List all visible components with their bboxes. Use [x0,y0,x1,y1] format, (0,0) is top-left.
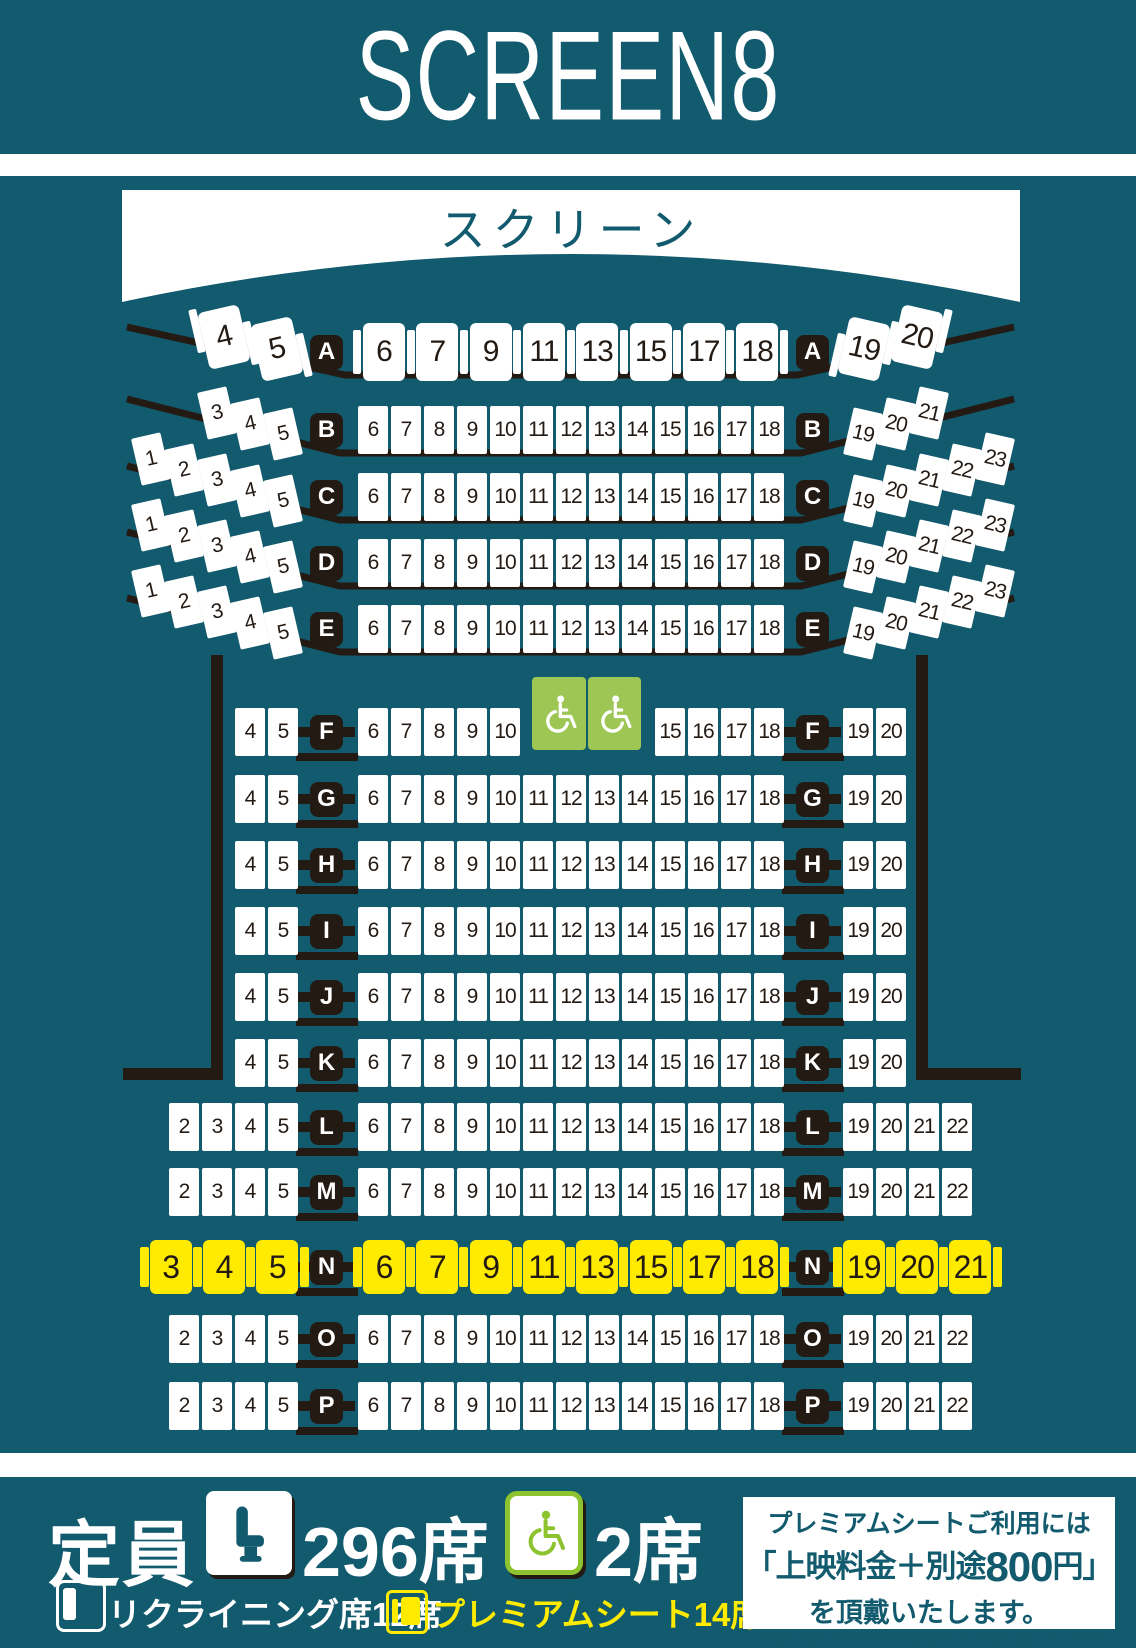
seat-L-11[interactable]: 11 [523,1103,553,1151]
seat-G-12[interactable]: 12 [556,775,586,823]
seat-C-13[interactable]: 13 [589,473,619,521]
seat-E-6[interactable]: 6 [358,605,388,653]
seat-L-3[interactable]: 3 [202,1103,232,1151]
seat-B-7[interactable]: 7 [391,406,421,454]
seat-M-21[interactable]: 21 [909,1168,939,1216]
seat-G-4[interactable]: 4 [235,775,265,823]
seat-M-16[interactable]: 16 [688,1168,718,1216]
seat-C-23[interactable]: 23 [975,432,1015,486]
seat-O-15[interactable]: 15 [655,1315,685,1363]
seat-E-23[interactable]: 23 [975,564,1015,618]
seat-I-13[interactable]: 13 [589,907,619,955]
seat-I-10[interactable]: 10 [490,907,520,955]
seat-N-15[interactable]: 15 [630,1240,672,1294]
seat-P-9[interactable]: 9 [457,1382,487,1430]
seat-B-19[interactable]: 19 [843,407,883,461]
seat-G-10[interactable]: 10 [490,775,520,823]
seat-A-13[interactable]: 13 [576,323,618,381]
seat-J-17[interactable]: 17 [721,973,751,1021]
seat-J-5[interactable]: 5 [268,973,298,1021]
seat-I-8[interactable]: 8 [424,907,454,955]
seat-F-19[interactable]: 19 [843,708,873,756]
seat-G-18[interactable]: 18 [754,775,784,823]
seat-C-6[interactable]: 6 [358,473,388,521]
seat-K-13[interactable]: 13 [589,1039,619,1087]
seat-O-19[interactable]: 19 [843,1315,873,1363]
seat-D-21[interactable]: 21 [909,519,949,573]
seat-I-17[interactable]: 17 [721,907,751,955]
seat-N-18[interactable]: 18 [736,1240,778,1294]
seat-C-7[interactable]: 7 [391,473,421,521]
seat-H-12[interactable]: 12 [556,841,586,889]
seat-G-17[interactable]: 17 [721,775,751,823]
seat-M-19[interactable]: 19 [843,1168,873,1216]
seat-B-5[interactable]: 5 [263,407,303,461]
seat-F-17[interactable]: 17 [721,708,751,756]
seat-I-16[interactable]: 16 [688,907,718,955]
seat-O-16[interactable]: 16 [688,1315,718,1363]
seat-H-19[interactable]: 19 [843,841,873,889]
seat-I-9[interactable]: 9 [457,907,487,955]
seat-K-18[interactable]: 18 [754,1039,784,1087]
seat-D-3[interactable]: 3 [197,519,237,573]
seat-A-15[interactable]: 15 [630,323,672,381]
seat-I-19[interactable]: 19 [843,907,873,955]
seat-M-5[interactable]: 5 [268,1168,298,1216]
seat-O-14[interactable]: 14 [622,1315,652,1363]
seat-O-5[interactable]: 5 [268,1315,298,1363]
seat-D-8[interactable]: 8 [424,539,454,587]
seat-N-3[interactable]: 3 [150,1240,192,1294]
seat-G-15[interactable]: 15 [655,775,685,823]
seat-A-11[interactable]: 11 [523,323,565,381]
seat-A-19[interactable]: 19 [837,316,891,382]
seat-N-6[interactable]: 6 [363,1240,405,1294]
seat-D-19[interactable]: 19 [843,540,883,594]
seat-H-9[interactable]: 9 [457,841,487,889]
seat-P-18[interactable]: 18 [754,1382,784,1430]
seat-D-6[interactable]: 6 [358,539,388,587]
seat-K-5[interactable]: 5 [268,1039,298,1087]
seat-L-4[interactable]: 4 [235,1103,265,1151]
seat-E-14[interactable]: 14 [622,605,652,653]
seat-M-18[interactable]: 18 [754,1168,784,1216]
seat-P-13[interactable]: 13 [589,1382,619,1430]
seat-M-13[interactable]: 13 [589,1168,619,1216]
seat-H-8[interactable]: 8 [424,841,454,889]
seat-P-6[interactable]: 6 [358,1382,388,1430]
seat-P-17[interactable]: 17 [721,1382,751,1430]
seat-G-7[interactable]: 7 [391,775,421,823]
seat-H-20[interactable]: 20 [876,841,906,889]
seat-B-12[interactable]: 12 [556,406,586,454]
seat-M-14[interactable]: 14 [622,1168,652,1216]
seat-B-4[interactable]: 4 [230,397,270,451]
seat-E-8[interactable]: 8 [424,605,454,653]
seat-H-13[interactable]: 13 [589,841,619,889]
seat-C-9[interactable]: 9 [457,473,487,521]
seat-A-9[interactable]: 9 [470,323,512,381]
seat-H-7[interactable]: 7 [391,841,421,889]
seat-L-22[interactable]: 22 [942,1103,972,1151]
seat-L-2[interactable]: 2 [169,1103,199,1151]
seat-M-6[interactable]: 6 [358,1168,388,1216]
seat-F-18[interactable]: 18 [754,708,784,756]
seat-L-6[interactable]: 6 [358,1103,388,1151]
seat-E-10[interactable]: 10 [490,605,520,653]
seat-L-20[interactable]: 20 [876,1103,906,1151]
seat-L-17[interactable]: 17 [721,1103,751,1151]
seat-G-19[interactable]: 19 [843,775,873,823]
seat-H-6[interactable]: 6 [358,841,388,889]
wheelchair-seat-F-1[interactable] [532,677,585,750]
seat-D-13[interactable]: 13 [589,539,619,587]
seat-O-12[interactable]: 12 [556,1315,586,1363]
seat-B-9[interactable]: 9 [457,406,487,454]
seat-I-4[interactable]: 4 [235,907,265,955]
seat-B-3[interactable]: 3 [197,386,237,440]
seat-I-7[interactable]: 7 [391,907,421,955]
seat-L-19[interactable]: 19 [843,1103,873,1151]
seat-B-8[interactable]: 8 [424,406,454,454]
seat-N-5[interactable]: 5 [256,1240,298,1294]
seat-P-21[interactable]: 21 [909,1382,939,1430]
seat-J-12[interactable]: 12 [556,973,586,1021]
seat-C-3[interactable]: 3 [197,453,237,507]
seat-N-17[interactable]: 17 [683,1240,725,1294]
seat-O-22[interactable]: 22 [942,1315,972,1363]
seat-O-4[interactable]: 4 [235,1315,265,1363]
seat-P-4[interactable]: 4 [235,1382,265,1430]
seat-E-16[interactable]: 16 [688,605,718,653]
seat-N-13[interactable]: 13 [576,1240,618,1294]
seat-J-20[interactable]: 20 [876,973,906,1021]
seat-N-11[interactable]: 11 [523,1240,565,1294]
seat-K-4[interactable]: 4 [235,1039,265,1087]
seat-K-16[interactable]: 16 [688,1039,718,1087]
seat-E-7[interactable]: 7 [391,605,421,653]
seat-L-14[interactable]: 14 [622,1103,652,1151]
seat-D-16[interactable]: 16 [688,539,718,587]
seat-O-10[interactable]: 10 [490,1315,520,1363]
seat-C-21[interactable]: 21 [909,453,949,507]
seat-D-5[interactable]: 5 [263,540,303,594]
seat-H-17[interactable]: 17 [721,841,751,889]
seat-E-19[interactable]: 19 [843,606,883,660]
seat-B-15[interactable]: 15 [655,406,685,454]
seat-C-19[interactable]: 19 [843,474,883,528]
seat-M-15[interactable]: 15 [655,1168,685,1216]
seat-K-9[interactable]: 9 [457,1039,487,1087]
seat-C-10[interactable]: 10 [490,473,520,521]
seat-layer: 4567911131517181920AA3456789101112131415… [0,0,1136,1648]
row-label-stub [298,1334,310,1344]
seat-A-17[interactable]: 17 [683,323,725,381]
seat-G-14[interactable]: 14 [622,775,652,823]
seat-G-6[interactable]: 6 [358,775,388,823]
seat-N-4[interactable]: 4 [203,1240,245,1294]
seat-C-16[interactable]: 16 [688,473,718,521]
seat-I-6[interactable]: 6 [358,907,388,955]
seat-N-20[interactable]: 20 [896,1240,938,1294]
seat-G-13[interactable]: 13 [589,775,619,823]
seat-N-7[interactable]: 7 [416,1240,458,1294]
seat-J-8[interactable]: 8 [424,973,454,1021]
seat-M-20[interactable]: 20 [876,1168,906,1216]
seat-O-7[interactable]: 7 [391,1315,421,1363]
seat-H-18[interactable]: 18 [754,841,784,889]
seat-J-4[interactable]: 4 [235,973,265,1021]
seat-M-11[interactable]: 11 [523,1168,553,1216]
seat-H-16[interactable]: 16 [688,841,718,889]
seat-L-16[interactable]: 16 [688,1103,718,1151]
seat-I-18[interactable]: 18 [754,907,784,955]
seat-K-20[interactable]: 20 [876,1039,906,1087]
seat-C-12[interactable]: 12 [556,473,586,521]
seat-O-9[interactable]: 9 [457,1315,487,1363]
seat-K-19[interactable]: 19 [843,1039,873,1087]
seat-M-12[interactable]: 12 [556,1168,586,1216]
seat-P-8[interactable]: 8 [424,1382,454,1430]
seat-E-5[interactable]: 5 [263,606,303,660]
seat-J-19[interactable]: 19 [843,973,873,1021]
seat-C-14[interactable]: 14 [622,473,652,521]
seat-M-2[interactable]: 2 [169,1168,199,1216]
seat-J-7[interactable]: 7 [391,973,421,1021]
seat-K-8[interactable]: 8 [424,1039,454,1087]
seat-B-17[interactable]: 17 [721,406,751,454]
seat-F-7[interactable]: 7 [391,708,421,756]
seat-F-16[interactable]: 16 [688,708,718,756]
seat-B-21[interactable]: 21 [909,386,949,440]
seat-J-13[interactable]: 13 [589,973,619,1021]
seat-B-13[interactable]: 13 [589,406,619,454]
seat-D-14[interactable]: 14 [622,539,652,587]
seat-N-19[interactable]: 19 [843,1240,885,1294]
seat-D-18[interactable]: 18 [754,539,784,587]
seat-M-4[interactable]: 4 [235,1168,265,1216]
seat-L-21[interactable]: 21 [909,1103,939,1151]
seat-M-8[interactable]: 8 [424,1168,454,1216]
seat-I-11[interactable]: 11 [523,907,553,955]
seat-P-16[interactable]: 16 [688,1382,718,1430]
seat-M-9[interactable]: 9 [457,1168,487,1216]
seat-E-18[interactable]: 18 [754,605,784,653]
seat-P-14[interactable]: 14 [622,1382,652,1430]
seat-B-14[interactable]: 14 [622,406,652,454]
seat-F-15[interactable]: 15 [655,708,685,756]
seat-D-2[interactable]: 2 [164,509,204,563]
seat-E-11[interactable]: 11 [523,605,553,653]
seat-D-23[interactable]: 23 [975,498,1015,552]
seat-O-21[interactable]: 21 [909,1315,939,1363]
seat-B-18[interactable]: 18 [754,406,784,454]
seat-K-15[interactable]: 15 [655,1039,685,1087]
seat-L-15[interactable]: 15 [655,1103,685,1151]
armrest [353,1247,362,1287]
seat-P-5[interactable]: 5 [268,1382,298,1430]
seat-I-15[interactable]: 15 [655,907,685,955]
seat-K-6[interactable]: 6 [358,1039,388,1087]
seat-J-10[interactable]: 10 [490,973,520,1021]
seat-M-17[interactable]: 17 [721,1168,751,1216]
seat-D-10[interactable]: 10 [490,539,520,587]
seat-A-20[interactable]: 20 [890,304,944,370]
seat-C-18[interactable]: 18 [754,473,784,521]
seat-D-7[interactable]: 7 [391,539,421,587]
seat-G-20[interactable]: 20 [876,775,906,823]
seat-O-2[interactable]: 2 [169,1315,199,1363]
row-label-stub [343,794,355,804]
seat-H-5[interactable]: 5 [268,841,298,889]
seat-D-15[interactable]: 15 [655,539,685,587]
seat-E-2[interactable]: 2 [164,575,204,629]
seat-F-8[interactable]: 8 [424,708,454,756]
seat-P-22[interactable]: 22 [942,1382,972,1430]
seat-D-17[interactable]: 17 [721,539,751,587]
seat-C-8[interactable]: 8 [424,473,454,521]
row-label-F: F [796,715,829,750]
seat-C-11[interactable]: 11 [523,473,553,521]
seat-M-10[interactable]: 10 [490,1168,520,1216]
seat-F-10[interactable]: 10 [490,708,520,756]
seat-A-4[interactable]: 4 [197,304,251,370]
seat-H-15[interactable]: 15 [655,841,685,889]
seat-K-12[interactable]: 12 [556,1039,586,1087]
seat-J-9[interactable]: 9 [457,973,487,1021]
seat-K-14[interactable]: 14 [622,1039,652,1087]
seat-O-17[interactable]: 17 [721,1315,751,1363]
seat-D-1[interactable]: 1 [131,498,171,552]
seat-E-4[interactable]: 4 [230,596,270,650]
seat-G-8[interactable]: 8 [424,775,454,823]
seat-K-10[interactable]: 10 [490,1039,520,1087]
seat-E-9[interactable]: 9 [457,605,487,653]
seat-N-9[interactable]: 9 [470,1240,512,1294]
seat-O-13[interactable]: 13 [589,1315,619,1363]
row-label-stub [343,1122,355,1132]
seat-C-1[interactable]: 1 [131,432,171,486]
seat-P-2[interactable]: 2 [169,1382,199,1430]
seat-B-6[interactable]: 6 [358,406,388,454]
seat-J-15[interactable]: 15 [655,973,685,1021]
seat-M-7[interactable]: 7 [391,1168,421,1216]
seat-C-2[interactable]: 2 [164,443,204,497]
seat-M-22[interactable]: 22 [942,1168,972,1216]
wheelchair-seat-F-2[interactable] [588,677,641,750]
seat-C-17[interactable]: 17 [721,473,751,521]
seat-J-14[interactable]: 14 [622,973,652,1021]
seat-D-9[interactable]: 9 [457,539,487,587]
seat-L-7[interactable]: 7 [391,1103,421,1151]
seat-C-4[interactable]: 4 [230,464,270,518]
seat-F-6[interactable]: 6 [358,708,388,756]
seat-I-5[interactable]: 5 [268,907,298,955]
seat-G-11[interactable]: 11 [523,775,553,823]
seat-O-11[interactable]: 11 [523,1315,553,1363]
seat-E-1[interactable]: 1 [131,564,171,618]
seat-B-11[interactable]: 11 [523,406,553,454]
seat-I-12[interactable]: 12 [556,907,586,955]
seat-I-20[interactable]: 20 [876,907,906,955]
seat-J-11[interactable]: 11 [523,973,553,1021]
seat-F-9[interactable]: 9 [457,708,487,756]
seat-G-5[interactable]: 5 [268,775,298,823]
seat-K-7[interactable]: 7 [391,1039,421,1087]
seat-K-17[interactable]: 17 [721,1039,751,1087]
seat-D-4[interactable]: 4 [230,530,270,584]
seat-P-20[interactable]: 20 [876,1382,906,1430]
seat-A-18[interactable]: 18 [736,323,778,381]
seat-B-10[interactable]: 10 [490,406,520,454]
armrest [673,330,681,374]
seat-P-10[interactable]: 10 [490,1382,520,1430]
seat-G-9[interactable]: 9 [457,775,487,823]
seat-D-11[interactable]: 11 [523,539,553,587]
seat-H-10[interactable]: 10 [490,841,520,889]
seat-O-8[interactable]: 8 [424,1315,454,1363]
seat-G-16[interactable]: 16 [688,775,718,823]
seat-P-7[interactable]: 7 [391,1382,421,1430]
seat-J-16[interactable]: 16 [688,973,718,1021]
seat-L-10[interactable]: 10 [490,1103,520,1151]
seat-P-19[interactable]: 19 [843,1382,873,1430]
seat-A-7[interactable]: 7 [416,323,458,381]
seat-E-3[interactable]: 3 [197,585,237,639]
seat-A-6[interactable]: 6 [363,323,405,381]
seat-O-3[interactable]: 3 [202,1315,232,1363]
seat-L-12[interactable]: 12 [556,1103,586,1151]
seat-C-5[interactable]: 5 [263,474,303,528]
seat-N-21[interactable]: 21 [949,1240,991,1294]
seat-O-6[interactable]: 6 [358,1315,388,1363]
seat-F-4[interactable]: 4 [235,708,265,756]
seat-E-13[interactable]: 13 [589,605,619,653]
seat-L-5[interactable]: 5 [268,1103,298,1151]
seat-P-11[interactable]: 11 [523,1382,553,1430]
seat-P-15[interactable]: 15 [655,1382,685,1430]
seat-L-18[interactable]: 18 [754,1103,784,1151]
seat-L-9[interactable]: 9 [457,1103,487,1151]
seat-H-11[interactable]: 11 [523,841,553,889]
seat-B-16[interactable]: 16 [688,406,718,454]
seat-J-6[interactable]: 6 [358,973,388,1021]
seat-J-18[interactable]: 18 [754,973,784,1021]
seat-F-5[interactable]: 5 [268,708,298,756]
seat-O-18[interactable]: 18 [754,1315,784,1363]
seat-E-15[interactable]: 15 [655,605,685,653]
seat-C-15[interactable]: 15 [655,473,685,521]
seat-M-3[interactable]: 3 [202,1168,232,1216]
armrest [886,1247,895,1287]
seat-K-11[interactable]: 11 [523,1039,553,1087]
seat-H-4[interactable]: 4 [235,841,265,889]
seat-E-17[interactable]: 17 [721,605,751,653]
seat-I-14[interactable]: 14 [622,907,652,955]
seat-D-12[interactable]: 12 [556,539,586,587]
armrest [353,330,361,374]
seat-E-21[interactable]: 21 [909,585,949,639]
seat-A-5[interactable]: 5 [250,316,304,382]
seat-L-8[interactable]: 8 [424,1103,454,1151]
seat-O-20[interactable]: 20 [876,1315,906,1363]
seat-E-12[interactable]: 12 [556,605,586,653]
seat-L-13[interactable]: 13 [589,1103,619,1151]
seat-P-12[interactable]: 12 [556,1382,586,1430]
seat-P-3[interactable]: 3 [202,1382,232,1430]
seat-H-14[interactable]: 14 [622,841,652,889]
seat-F-20[interactable]: 20 [876,708,906,756]
